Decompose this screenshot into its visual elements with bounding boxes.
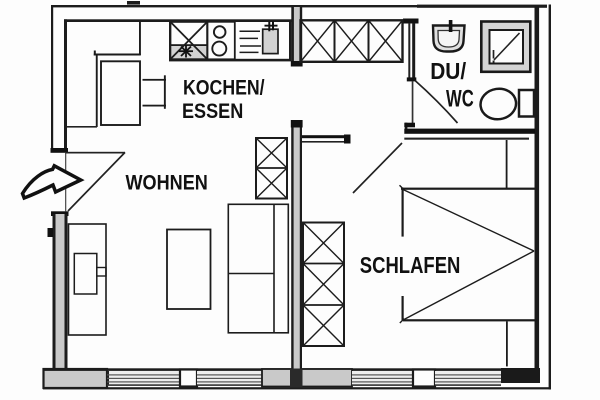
svg-text:SCHLAFEN: SCHLAFEN [360, 252, 461, 278]
svg-text:DU/: DU/ [430, 58, 466, 84]
svg-text:ESSEN: ESSEN [182, 99, 243, 123]
svg-text:WC: WC [446, 86, 474, 113]
svg-text:KOCHEN/: KOCHEN/ [183, 77, 265, 100]
svg-text:WOHNEN: WOHNEN [126, 172, 208, 195]
